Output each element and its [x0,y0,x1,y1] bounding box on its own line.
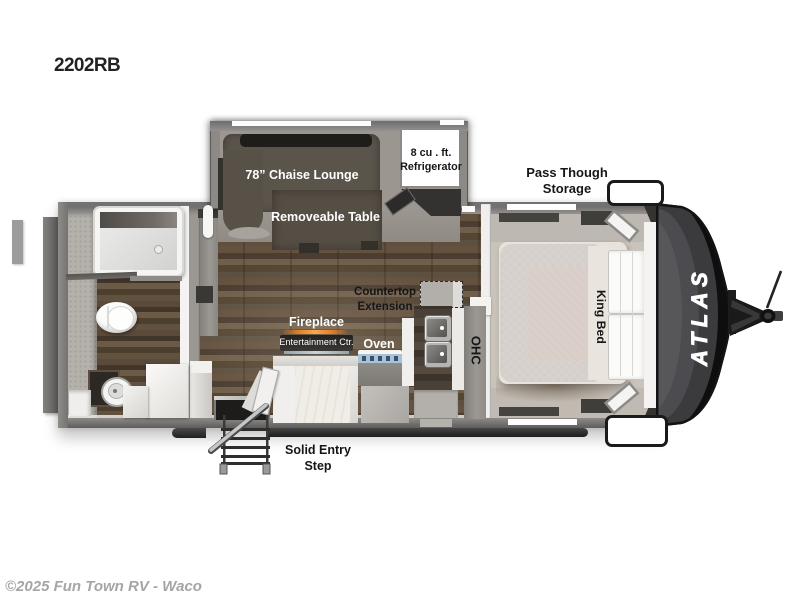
svg-text:ATLAS: ATLAS [687,267,712,367]
